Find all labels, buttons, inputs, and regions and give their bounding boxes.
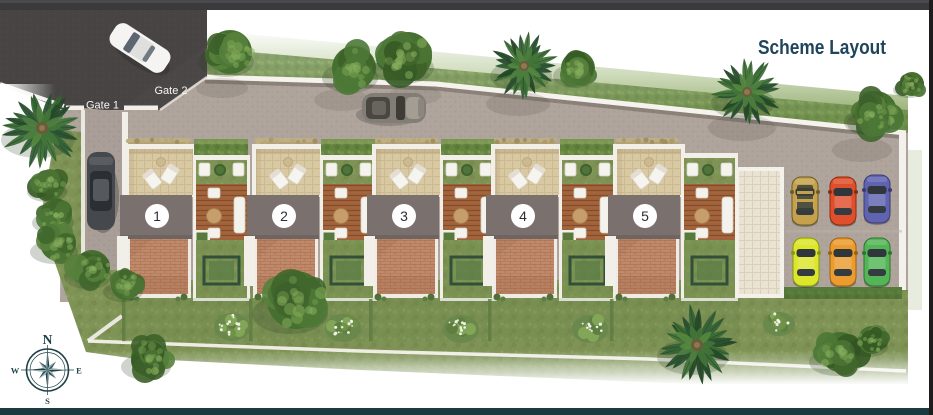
svg-text:5: 5 xyxy=(641,208,649,224)
svg-text:1: 1 xyxy=(153,208,161,224)
svg-text:3: 3 xyxy=(400,208,408,224)
svg-text:N: N xyxy=(43,332,53,347)
svg-text:W: W xyxy=(11,366,20,376)
svg-text:4: 4 xyxy=(519,208,527,224)
svg-text:E: E xyxy=(76,366,82,376)
svg-text:2: 2 xyxy=(280,208,288,224)
svg-text:Gate 2: Gate 2 xyxy=(155,85,188,97)
svg-text:Scheme Layout: Scheme Layout xyxy=(758,37,886,59)
svg-text:S: S xyxy=(45,396,50,406)
svg-text:Gate 1: Gate 1 xyxy=(86,100,119,112)
